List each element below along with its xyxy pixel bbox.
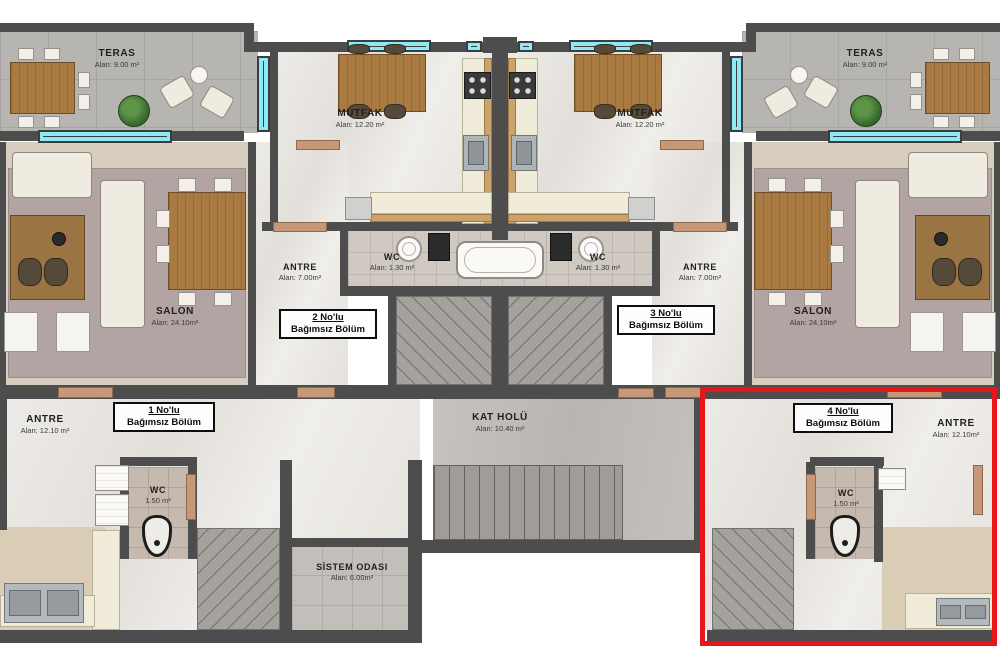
decor — [52, 232, 66, 246]
stool — [910, 312, 944, 352]
wall — [280, 460, 292, 635]
chair — [18, 116, 34, 128]
desk — [10, 215, 85, 300]
chair — [156, 245, 170, 263]
dining-table — [925, 62, 990, 114]
room-label-kat-holu: KAT HOLÜ Alan: 10.40 m² — [440, 412, 560, 433]
sistem-odasi-floor — [292, 545, 410, 630]
wall — [248, 142, 256, 388]
chair — [959, 48, 975, 60]
chair — [933, 116, 949, 128]
chair — [910, 94, 922, 110]
kitchen-sink-icon — [511, 135, 537, 171]
room-label-mutfak-left: MUTFAK Alan: 12.20 m² — [305, 108, 415, 129]
chair — [348, 44, 370, 54]
wall — [388, 292, 396, 390]
chair — [178, 178, 196, 192]
chair — [959, 116, 975, 128]
wall — [120, 457, 197, 466]
stairs-kat-holu — [433, 465, 623, 540]
wall — [408, 540, 704, 553]
wall — [722, 52, 730, 224]
chair — [768, 178, 786, 192]
room-label-teras-right: TERAS Alan: 9.00 m² — [810, 48, 920, 69]
decor — [934, 232, 948, 246]
chair — [630, 44, 652, 54]
chair — [804, 178, 822, 192]
wall — [660, 222, 673, 231]
wall — [744, 142, 752, 388]
door — [296, 140, 340, 150]
cabinet — [628, 197, 655, 220]
chair — [958, 258, 982, 286]
cabinet — [95, 494, 129, 526]
sofa — [855, 180, 900, 328]
room-label-antre-1: ANTRE Alan: 12.10 m² — [0, 414, 90, 435]
bathtub-icon — [456, 241, 544, 279]
window — [518, 41, 534, 52]
wall — [262, 222, 273, 231]
door — [673, 222, 727, 232]
room-label-antre-2: ANTRE Alan: 7.00m² — [262, 262, 338, 282]
room-label-teras-left: TERAS Alan: 9.00 m² — [62, 48, 172, 69]
chair — [804, 292, 822, 306]
stairs-unit1 — [197, 528, 280, 630]
kitchen-table — [574, 54, 662, 112]
chair — [78, 72, 90, 88]
stairs-upper-left — [396, 296, 492, 385]
wall — [0, 630, 422, 643]
wall — [492, 292, 508, 390]
room-label-wc-3: WC Alan: 1.30 m² — [566, 252, 630, 272]
door — [273, 222, 327, 232]
side-table — [790, 66, 808, 84]
window — [466, 41, 482, 52]
chair — [768, 292, 786, 306]
room-label-salon-left: SALON Alan: 24.10m² — [130, 306, 220, 327]
wall — [0, 23, 244, 32]
window — [257, 56, 270, 132]
stool — [56, 312, 90, 352]
unit-label-3: 3 No'lu Bağımsız Bölüm — [617, 305, 715, 335]
stool — [962, 312, 996, 352]
chair — [933, 48, 949, 60]
wall — [604, 292, 612, 390]
door — [58, 387, 113, 398]
door — [665, 387, 703, 398]
room-label-wc-1: WC 1.50 m² — [130, 485, 186, 505]
chair — [156, 210, 170, 228]
unit-label-2: 2 No'lu Bağımsız Bölüm — [279, 309, 377, 339]
room-label-antre-3: ANTRE Alan: 7.00m² — [662, 262, 738, 282]
plant-icon — [850, 95, 882, 127]
plant-icon — [118, 95, 150, 127]
wall — [282, 538, 414, 547]
chair — [214, 178, 232, 192]
chair — [44, 258, 68, 286]
door — [297, 387, 335, 398]
chair — [18, 48, 34, 60]
dining-table — [754, 192, 832, 290]
chair — [830, 245, 844, 263]
double-sink-icon — [4, 583, 84, 623]
room-label-salon-right: SALON Alan: 24.10m² — [768, 306, 858, 327]
window — [730, 56, 743, 132]
side-table — [190, 66, 208, 84]
sofa — [12, 152, 92, 198]
window — [38, 130, 172, 143]
floor-plan: TERAS Alan: 9.00 m² TERAS Alan: 9.00 m² … — [0, 0, 1000, 664]
desk — [915, 215, 990, 300]
kitchen-counter — [370, 192, 492, 214]
sofa — [908, 152, 988, 198]
unit4-highlight-outline — [700, 387, 997, 646]
wall — [492, 42, 508, 240]
kitchenette-counter — [92, 530, 120, 630]
chair — [910, 72, 922, 88]
kitchen-sink-icon — [463, 135, 489, 171]
chair — [594, 44, 616, 54]
stove-icon — [464, 72, 491, 99]
chair — [18, 258, 42, 286]
vanity-cabinet — [428, 233, 450, 261]
cabinet — [345, 197, 372, 220]
room-label-wc-2: WC Alan: 1.30 m² — [360, 252, 424, 272]
dining-table — [10, 62, 75, 114]
kitchen-counter — [508, 192, 630, 214]
chair — [78, 94, 90, 110]
door — [618, 388, 654, 398]
chair — [830, 210, 844, 228]
room-label-sistem-odasi: SİSTEM ODASI Alan: 6.00m² — [296, 562, 408, 582]
chair — [932, 258, 956, 286]
chair — [178, 292, 196, 306]
wall — [270, 52, 278, 224]
wall — [727, 222, 738, 231]
room-label-mutfak-right: MUTFAK Alan: 12.20 m² — [585, 108, 695, 129]
chair — [384, 44, 406, 54]
wall — [327, 222, 340, 231]
chair — [44, 48, 60, 60]
unit-label-1: 1 No'lu Bağımsız Bölüm — [113, 402, 215, 432]
dining-table — [168, 192, 246, 290]
window — [828, 130, 962, 143]
kitchen-counter-edge — [370, 214, 492, 222]
chair — [44, 116, 60, 128]
door — [660, 140, 704, 150]
chair — [214, 292, 232, 306]
stairs-upper-right — [508, 296, 604, 385]
kitchen-table — [338, 54, 426, 112]
stool — [4, 312, 38, 352]
door — [186, 474, 196, 520]
kitchen-counter-edge — [508, 214, 630, 222]
cabinet — [95, 465, 129, 491]
wall — [756, 23, 1000, 32]
stove-icon — [509, 72, 536, 99]
